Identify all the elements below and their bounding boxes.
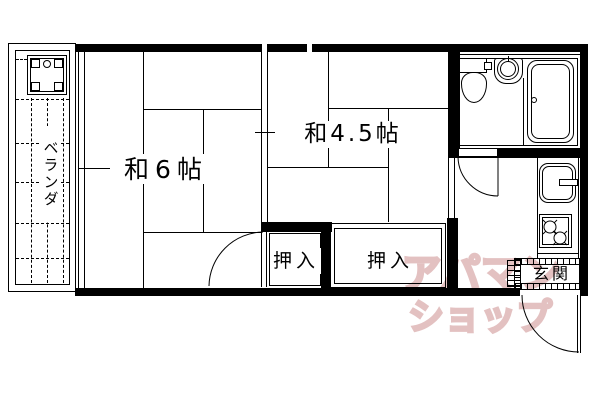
watermark-line-1: アパマン — [396, 254, 566, 294]
bathroom-door-arc — [458, 157, 498, 196]
room-door-arc — [209, 232, 263, 286]
watermark-line-2: ショップ — [400, 300, 560, 336]
floor-plan: 和6帖 和4.5帖 押入 押入 玄関 ベランダ アパマン ショップ — [0, 0, 600, 400]
stove-burner-icon — [543, 220, 567, 245]
plan-linework — [0, 0, 600, 400]
